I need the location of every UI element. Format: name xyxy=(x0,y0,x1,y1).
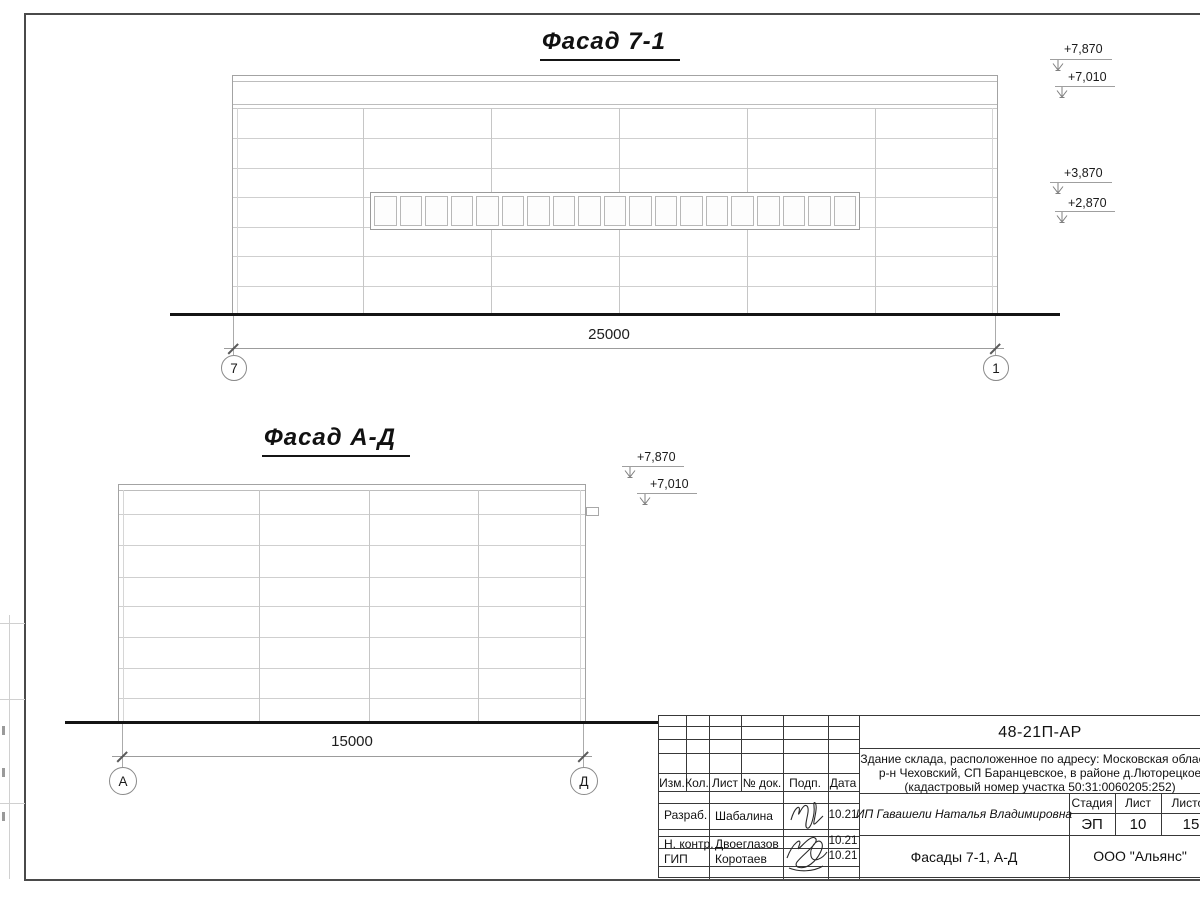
window-cell xyxy=(374,196,397,226)
sheets-value: 15 xyxy=(1183,816,1200,833)
stamp-col-doc: № док. xyxy=(743,776,781,790)
binding-strip-line xyxy=(9,615,10,879)
siding-line xyxy=(119,606,585,607)
stamp-line xyxy=(659,726,859,727)
siding-line xyxy=(119,577,585,578)
title-block: Изм. Кол. Лист № док. Подп. Дата Разраб.… xyxy=(658,715,1200,878)
window-cell xyxy=(655,196,678,226)
window-cell xyxy=(400,196,423,226)
window-cell xyxy=(757,196,780,226)
stamp-line xyxy=(1161,793,1162,835)
window-cell xyxy=(604,196,627,226)
siding-line xyxy=(119,637,585,638)
axis-label: 1 xyxy=(992,361,1000,376)
project-desc-line3: (кадастровый номер участка 50:31:0060205… xyxy=(904,780,1175,794)
stamp-line xyxy=(659,791,859,792)
stamp-name: Шабалина xyxy=(715,809,773,823)
panel-joint xyxy=(363,108,364,314)
siding-line xyxy=(119,545,585,546)
window-cell xyxy=(629,196,652,226)
dimension-value: 25000 xyxy=(551,326,667,343)
binding-mark xyxy=(2,812,5,821)
frame-top-line xyxy=(24,13,1200,15)
facade-a-d-title: Фасад А-Д xyxy=(262,424,410,457)
siding-line xyxy=(233,286,997,287)
panel-joint xyxy=(478,490,479,721)
window-cell xyxy=(680,196,703,226)
doc-code: 48-21П-АР xyxy=(998,724,1082,742)
window-cell xyxy=(834,196,857,226)
facade-a-d-drawing xyxy=(118,484,586,722)
window-cell xyxy=(476,196,499,226)
window-cell xyxy=(706,196,729,226)
stamp-line xyxy=(1069,793,1070,879)
binding-strip-line xyxy=(0,623,25,624)
panel-joint xyxy=(875,108,876,314)
wall-outlet xyxy=(586,507,599,516)
panel-joint xyxy=(992,108,993,314)
signature-scribble xyxy=(787,796,827,832)
stamp-line xyxy=(709,716,710,879)
stamp-role: ГИП xyxy=(664,852,688,866)
panel-joint xyxy=(237,108,238,314)
stamp-line xyxy=(1115,793,1116,835)
panel-joint xyxy=(259,490,260,721)
sheet-label: Лист xyxy=(1125,796,1151,810)
elevation-arrow-icon xyxy=(1056,87,1068,102)
dimension-line xyxy=(224,348,1004,349)
stage-value: ЭП xyxy=(1081,816,1103,833)
stamp-name: Двоеглазов xyxy=(715,837,779,851)
siding-line xyxy=(119,698,585,699)
elevation-value: +7,010 xyxy=(650,477,689,491)
elevation-value: +3,870 xyxy=(1064,166,1103,180)
parapet-line xyxy=(233,108,997,109)
elevation-arrow-icon xyxy=(1056,212,1068,227)
stamp-date: 10.21 xyxy=(829,850,858,862)
stamp-date: 10.21 xyxy=(829,809,858,821)
window-cell xyxy=(502,196,525,226)
stage-label: Стадия xyxy=(1072,796,1113,810)
window-cell xyxy=(808,196,831,226)
ground-line xyxy=(65,721,690,724)
signature-scribble xyxy=(783,828,831,874)
panel-joint xyxy=(123,490,124,721)
siding-line xyxy=(119,668,585,669)
binding-strip-line xyxy=(0,803,25,804)
frame-left-line xyxy=(24,13,26,881)
elevation-value: +7,010 xyxy=(1068,70,1107,84)
stamp-line xyxy=(1069,813,1200,814)
sheets-label: Листов xyxy=(1172,796,1200,810)
stamp-line xyxy=(659,773,859,774)
stamp-col-data: Дата xyxy=(830,776,857,790)
grid-axis-bubble: 7 xyxy=(221,355,247,381)
stamp-line xyxy=(859,835,1200,836)
elevation-arrow-icon xyxy=(624,467,636,482)
panel-joint xyxy=(369,490,370,721)
axis-label: Д xyxy=(579,774,588,789)
stamp-line xyxy=(859,748,1200,749)
window-cell xyxy=(578,196,601,226)
stamp-date: 10.21 xyxy=(829,835,858,847)
organization-name: ООО "Альянс" xyxy=(1093,848,1187,864)
extension-line xyxy=(583,724,584,767)
stamp-role: Разраб. xyxy=(664,808,707,822)
axis-label: 7 xyxy=(230,361,238,376)
panel-joint xyxy=(580,490,581,721)
elevation-value: +2,870 xyxy=(1068,196,1107,210)
drawing-sheet: { "facade1": { "title": "Фасад 7-1", "di… xyxy=(0,0,1200,900)
stamp-line xyxy=(659,753,859,754)
grid-axis-bubble: 1 xyxy=(983,355,1009,381)
window-cell xyxy=(527,196,550,226)
parapet-line xyxy=(119,490,585,491)
axis-label: А xyxy=(118,774,127,789)
parapet-line xyxy=(233,81,997,82)
stamp-line xyxy=(659,739,859,740)
elevation-value: +7,870 xyxy=(1064,42,1103,56)
stamp-line xyxy=(659,803,859,804)
stamp-col-kol: Кол. xyxy=(685,776,709,790)
binding-mark xyxy=(2,726,5,735)
ground-line xyxy=(170,313,1060,316)
siding-line xyxy=(233,138,997,139)
project-desc-line1: Здание склада, расположенное по адресу: … xyxy=(860,752,1200,766)
grid-axis-bubble: А xyxy=(109,767,137,795)
sheet-title: Фасады 7-1, А-Д xyxy=(911,849,1018,865)
stamp-name: Коротаев xyxy=(715,852,767,866)
facade-7-1-title: Фасад 7-1 xyxy=(540,28,680,61)
extension-line xyxy=(122,724,123,767)
window-cell xyxy=(553,196,576,226)
elevation-arrow-icon xyxy=(639,494,651,509)
stamp-col-podp: Подп. xyxy=(789,776,821,790)
dimension-value: 15000 xyxy=(294,733,410,750)
siding-line xyxy=(233,168,997,169)
client-name: ИП Гавашели Наталья Владимировна xyxy=(856,807,1072,821)
siding-line xyxy=(233,256,997,257)
elevation-value: +7,870 xyxy=(637,450,676,464)
window-band xyxy=(370,192,860,230)
grid-axis-bubble: Д xyxy=(570,767,598,795)
window-cell xyxy=(451,196,474,226)
project-desc-line2: р-н Чеховский, СП Баранцевское, в районе… xyxy=(879,766,1200,780)
binding-mark xyxy=(2,768,5,777)
sheet-value: 10 xyxy=(1130,816,1147,833)
elevation-arrow-icon xyxy=(1052,60,1064,75)
elevation-arrow-icon xyxy=(1052,183,1064,198)
parapet-line xyxy=(233,104,997,105)
binding-strip-line xyxy=(0,699,25,700)
siding-line xyxy=(119,514,585,515)
stamp-line xyxy=(859,716,860,879)
stamp-col-izm: Изм. xyxy=(659,776,685,790)
stamp-role: Н. контр. xyxy=(664,837,714,851)
frame-bottom-line xyxy=(24,879,1200,881)
window-cell xyxy=(783,196,806,226)
dimension-line xyxy=(112,756,592,757)
window-cell xyxy=(425,196,448,226)
window-cell xyxy=(731,196,754,226)
stamp-col-list: Лист xyxy=(712,776,738,790)
